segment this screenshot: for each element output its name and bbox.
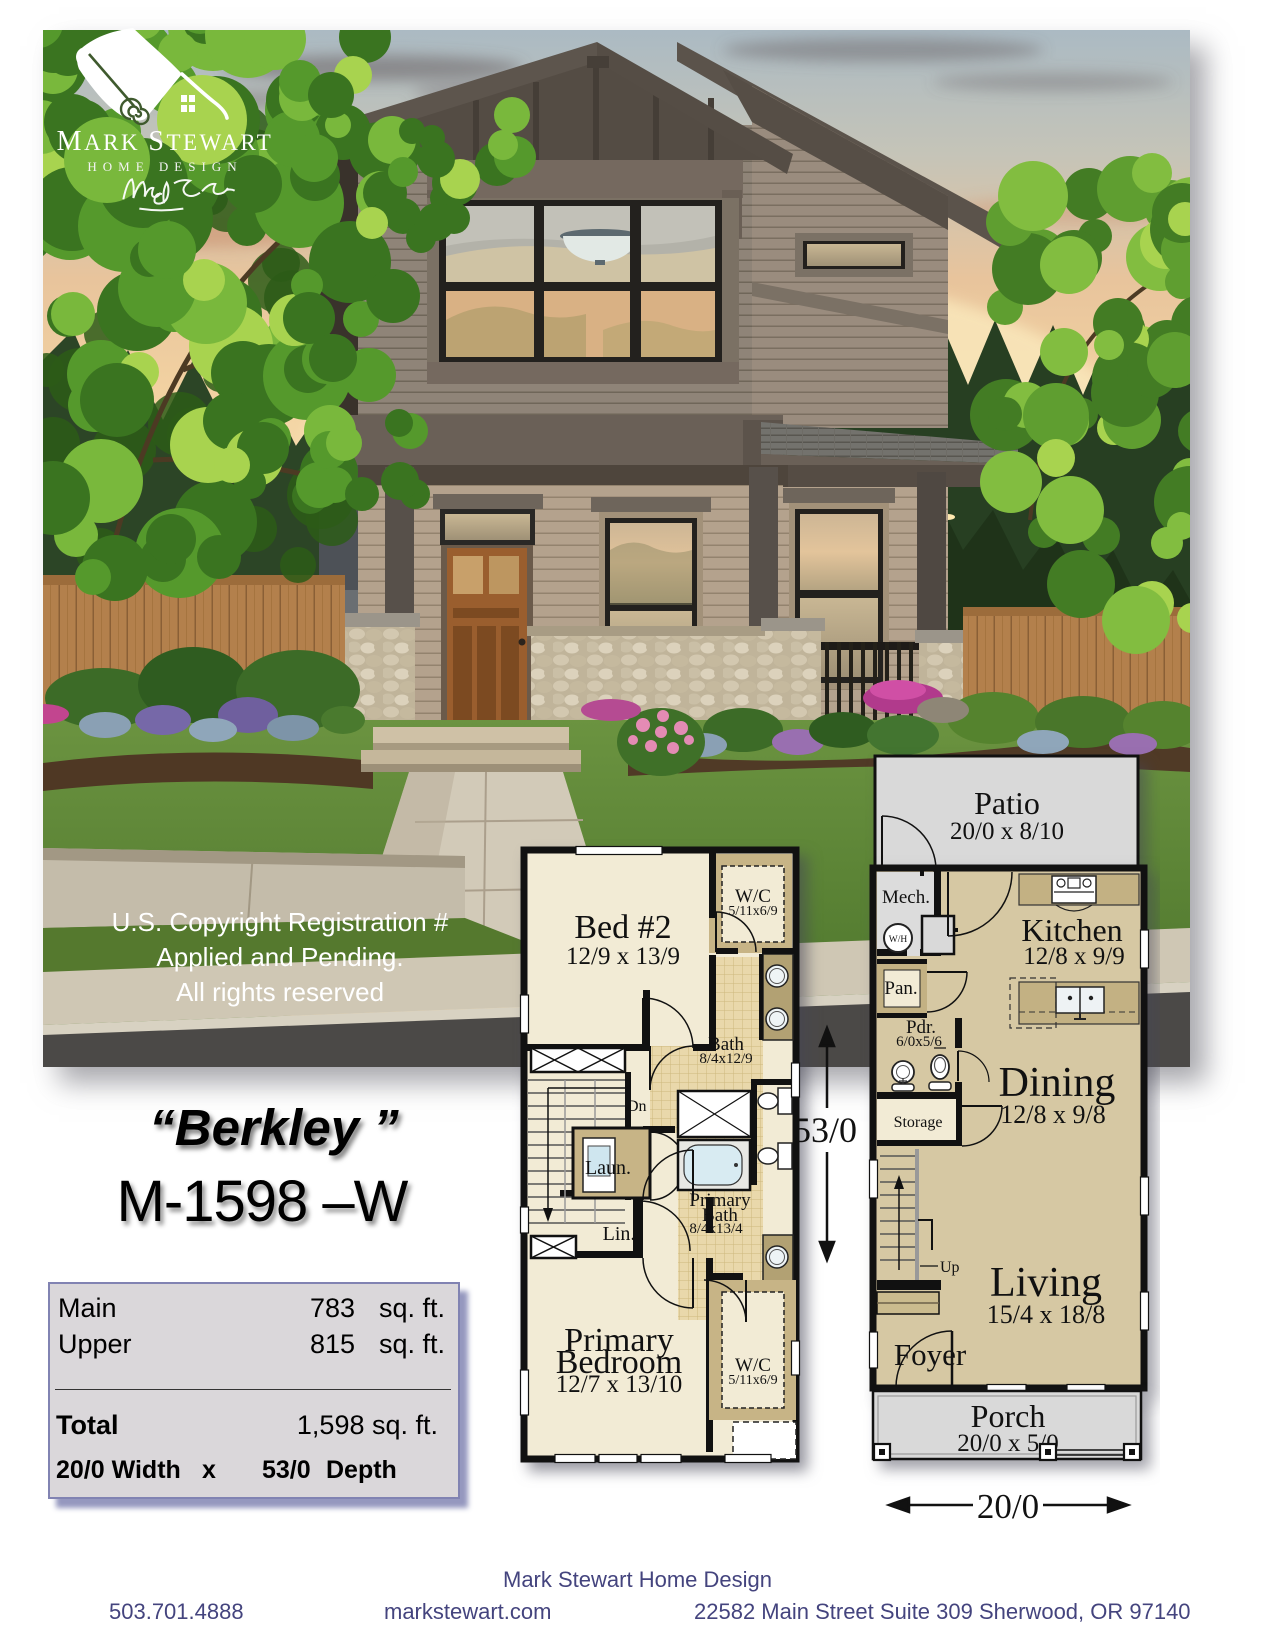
svg-text:12/9 x 13/9: 12/9 x 13/9 xyxy=(566,943,680,970)
svg-text:20/0: 20/0 xyxy=(977,1487,1039,1520)
svg-text:Pan.: Pan. xyxy=(884,978,917,999)
svg-text:Lin.: Lin. xyxy=(603,1223,636,1245)
svg-text:Up: Up xyxy=(940,1259,960,1276)
svg-text:12/7 x 13/10: 12/7 x 13/10 xyxy=(556,1371,682,1398)
svg-text:20/0 x 8/10: 20/0 x 8/10 xyxy=(950,818,1064,845)
svg-text:5/11x6/9: 5/11x6/9 xyxy=(728,1373,777,1388)
svg-text:Bed #2: Bed #2 xyxy=(574,909,671,946)
svg-text:Mech.: Mech. xyxy=(882,887,930,908)
svg-text:Porch: Porch xyxy=(971,1398,1046,1434)
svg-text:Storage: Storage xyxy=(894,1114,943,1131)
svg-text:15/4 x 18/8: 15/4 x 18/8 xyxy=(987,1300,1105,1329)
svg-text:12/8 x 9/8: 12/8 x 9/8 xyxy=(1000,1100,1105,1129)
svg-text:5/11x6/9: 5/11x6/9 xyxy=(728,904,777,919)
svg-text:53/0: 53/0 xyxy=(793,1110,857,1150)
svg-text:12/8 x 9/9: 12/8 x 9/9 xyxy=(1023,943,1124,970)
svg-text:Patio: Patio xyxy=(974,785,1040,821)
svg-text:Dn: Dn xyxy=(627,1098,647,1115)
svg-text:Laun.: Laun. xyxy=(585,1157,631,1179)
svg-text:8/4x13/4: 8/4x13/4 xyxy=(689,1221,743,1237)
svg-text:Foyer: Foyer xyxy=(894,1337,967,1372)
svg-text:8/4x12/9: 8/4x12/9 xyxy=(699,1051,752,1067)
svg-text:W/H: W/H xyxy=(889,935,908,945)
